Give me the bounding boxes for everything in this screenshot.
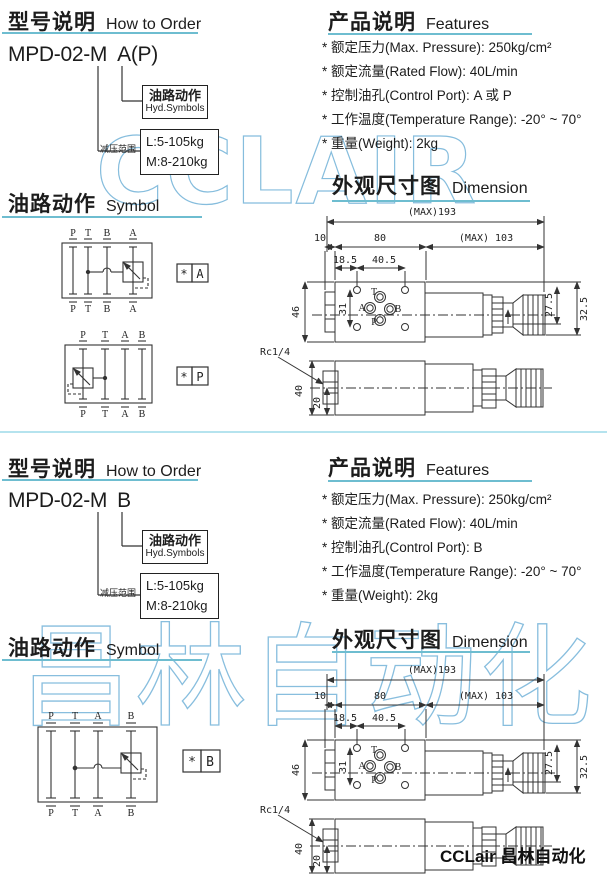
dimension-drawing-1: (MAX)193 10 80 (MAX) 103 18.5 40.5 46 31…: [250, 204, 605, 439]
dimension-heading-en: Dimension: [452, 180, 528, 198]
range-box: L:5-105kg M:8-210kg: [140, 129, 219, 175]
dim-80: 80: [374, 233, 386, 244]
port-label: T: [102, 330, 108, 341]
dim-103: (MAX) 103: [459, 233, 513, 244]
port-label: T: [85, 304, 91, 315]
hyd-symbols-en: Hyd.Symbols: [143, 548, 207, 559]
port-label: B: [139, 330, 146, 341]
symbol-heading-en: Symbol: [106, 198, 159, 216]
dim-31: 31: [338, 761, 349, 773]
port-label: B: [139, 409, 146, 420]
heading-rule: [2, 659, 202, 661]
range-l: L:5-105kg: [146, 576, 218, 596]
model-code-1: MPD-02-MA(P): [8, 43, 158, 67]
thread-label: Rc1/4: [260, 805, 290, 816]
symbol-code-letter: B: [206, 755, 214, 770]
port-label: A: [129, 304, 137, 315]
heading-rule: [328, 480, 532, 482]
dim-overall: (MAX)193: [408, 665, 456, 676]
dim-40-5: 40.5: [372, 713, 396, 724]
dimension-heading-1: 外观尺寸图 Dimension: [332, 170, 528, 200]
port-label: T: [102, 409, 108, 420]
heading-rule: [2, 216, 202, 218]
face-port-p: P: [371, 317, 377, 328]
hyd-symbols-zh: 油路动作: [143, 86, 207, 103]
face-port-b: B: [395, 304, 402, 315]
feature-item: * 控制油孔(Control Port): B: [322, 536, 582, 560]
symbol-code-letter: A: [196, 267, 204, 281]
dim-46: 46: [291, 306, 302, 318]
port-label: A: [121, 330, 129, 341]
face-port-a: A: [358, 761, 366, 772]
heading-rule: [332, 651, 530, 653]
heading-rule: [328, 33, 532, 35]
feature-item: * 工作温度(Temperature Range): -20° ~ 70°: [322, 560, 582, 584]
port-label: P: [80, 330, 86, 341]
dim-32-5: 32.5: [579, 297, 590, 321]
symbol-heading-zh: 油路动作: [8, 632, 96, 662]
section-divider: [0, 431, 607, 433]
symbol-heading-1: 油路动作 Symbol: [8, 188, 159, 218]
heading-rule: [332, 200, 530, 202]
dim-103: (MAX) 103: [459, 691, 513, 702]
symbol-heading-en: Symbol: [106, 642, 159, 660]
features-list-2: * 额定压力(Max. Pressure): 250kg/cm² * 额定流量(…: [322, 488, 582, 608]
range-box: L:5-105kg M:8-210kg: [140, 573, 219, 619]
dimension-heading-2: 外观尺寸图 Dimension: [332, 624, 528, 654]
face-port-p: P: [371, 775, 377, 786]
dim-18-5: 18.5: [333, 255, 357, 266]
feature-item: * 额定压力(Max. Pressure): 250kg/cm²: [322, 36, 582, 60]
dim-18-5: 18.5: [333, 713, 357, 724]
symbol-heading-2: 油路动作 Symbol: [8, 632, 159, 662]
dim-80: 80: [374, 691, 386, 702]
dim-10: 10: [314, 233, 326, 244]
port-label: A: [94, 808, 102, 819]
port-label: B: [104, 228, 111, 239]
feature-item: * 控制油孔(Control Port): A 或 P: [322, 84, 582, 108]
symbol-diagram-b: P T A B P T A B * B: [28, 703, 228, 818]
feature-item: * 额定流量(Rated Flow): 40L/min: [322, 512, 582, 536]
range-label: 减压范围: [100, 142, 136, 155]
symbol-code-letter: P: [196, 370, 203, 384]
port-label: P: [48, 711, 54, 722]
features-list-1: * 额定压力(Max. Pressure): 250kg/cm² * 额定流量(…: [322, 36, 582, 156]
hyd-symbols-box: 油路动作 Hyd.Symbols: [142, 530, 208, 564]
features-heading-1: 产品说明 Features: [328, 6, 489, 36]
dim-20: 20: [312, 397, 323, 409]
dimension-heading-zh: 外观尺寸图: [332, 624, 442, 654]
port-label: A: [94, 711, 102, 722]
port-label: B: [128, 808, 135, 819]
hyd-symbols-zh: 油路动作: [143, 531, 207, 548]
range-label: 减压范围: [100, 586, 136, 599]
hyd-symbols-box: 油路动作 Hyd.Symbols: [142, 85, 208, 119]
model-variant: B: [117, 489, 131, 512]
face-port-t: T: [371, 287, 377, 298]
dim-27-5: 27.5: [544, 751, 555, 775]
port-label: A: [129, 228, 137, 239]
features-heading-zh: 产品说明: [328, 452, 416, 482]
model-code-2: MPD-02-MB: [8, 489, 131, 513]
symbol-heading-zh: 油路动作: [8, 188, 96, 218]
model-base: MPD-02-M: [8, 489, 107, 512]
symbol-diagram-p: P T A B P T A B * P: [55, 330, 220, 418]
dim-40: 40: [294, 385, 305, 397]
dim-27-5: 27.5: [544, 293, 555, 317]
range-m: M:8-210kg: [146, 596, 218, 616]
dim-20: 20: [312, 855, 323, 867]
dim-40-5: 40.5: [372, 255, 396, 266]
catalog-page: CCLAIR 昌林自动化 型号说明 How to Order MPD-02-MA…: [0, 0, 607, 882]
footer-brand: CCLair 昌林自动化: [440, 842, 585, 867]
model-variant: A(P): [117, 43, 158, 66]
dim-40: 40: [294, 843, 305, 855]
features-heading-zh: 产品说明: [328, 6, 416, 36]
features-heading-2: 产品说明 Features: [328, 452, 489, 482]
dim-31: 31: [338, 303, 349, 315]
symbol-code-star: *: [180, 370, 187, 384]
port-label: B: [104, 304, 111, 315]
dimension-heading-zh: 外观尺寸图: [332, 170, 442, 200]
face-port-t: T: [371, 745, 377, 756]
dim-10: 10: [314, 691, 326, 702]
feature-item: * 重量(Weight): 2kg: [322, 132, 582, 156]
port-label: P: [70, 304, 76, 315]
thread-label: Rc1/4: [260, 347, 290, 358]
heading-rule: [2, 479, 198, 481]
range-l: L:5-105kg: [146, 132, 218, 152]
feature-item: * 额定压力(Max. Pressure): 250kg/cm²: [322, 488, 582, 512]
port-label: T: [85, 228, 91, 239]
symbol-code-star: *: [188, 755, 196, 770]
symbol-diagram-a: P T B A P T B A * A: [55, 228, 220, 314]
port-label: P: [48, 808, 54, 819]
feature-item: * 重量(Weight): 2kg: [322, 584, 582, 608]
model-base: MPD-02-M: [8, 43, 107, 66]
range-m: M:8-210kg: [146, 152, 218, 172]
features-heading-en: Features: [426, 16, 489, 34]
hyd-symbols-en: Hyd.Symbols: [143, 103, 207, 114]
port-label: T: [72, 711, 78, 722]
symbol-code-star: *: [180, 267, 187, 281]
port-label: T: [72, 808, 78, 819]
face-port-a: A: [358, 303, 366, 314]
port-label: A: [121, 409, 129, 420]
feature-item: * 额定流量(Rated Flow): 40L/min: [322, 60, 582, 84]
dim-32-5: 32.5: [579, 755, 590, 779]
feature-item: * 工作温度(Temperature Range): -20° ~ 70°: [322, 108, 582, 132]
dim-46: 46: [291, 764, 302, 776]
features-heading-en: Features: [426, 462, 489, 480]
face-port-b: B: [395, 762, 402, 773]
port-label: P: [80, 409, 86, 420]
heading-rule: [2, 32, 198, 34]
dimension-heading-en: Dimension: [452, 634, 528, 652]
dim-overall: (MAX)193: [408, 207, 456, 218]
port-label: P: [70, 228, 76, 239]
port-label: B: [128, 711, 135, 722]
